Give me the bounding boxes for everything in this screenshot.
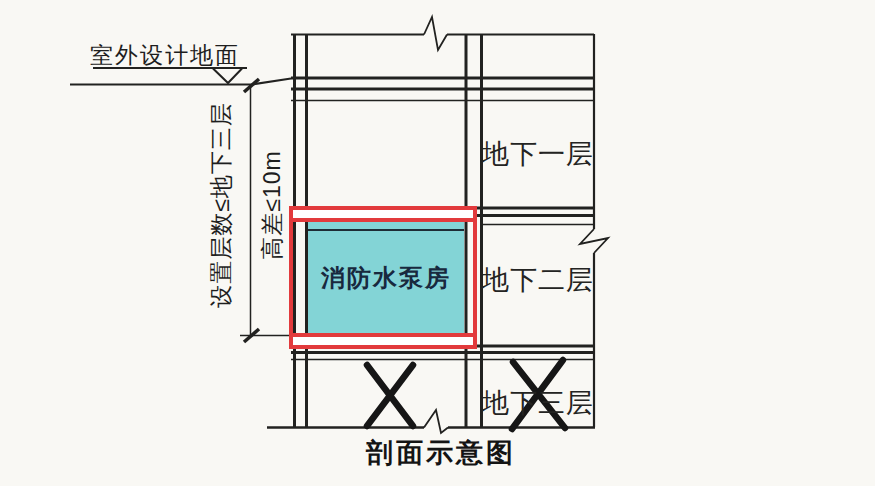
break-symbol-top bbox=[424, 17, 447, 50]
basement-3-label: 地下三层 bbox=[480, 388, 596, 418]
constraint-height-label: 高差≤10m bbox=[259, 130, 285, 280]
section-diagram: 室外设计地面 设置层数≤地下三层 高差≤10m 地下一层 地下二层 地下三层 消… bbox=[0, 0, 875, 486]
outdoor-ground-label: 室外设计地面 bbox=[90, 42, 240, 68]
pump-room-label: 消防水泵房 bbox=[308, 222, 464, 333]
basement-2-label: 地下二层 bbox=[480, 265, 596, 295]
constraint-levels-label: 设置层数≤地下三层 bbox=[208, 80, 234, 330]
ground-and-dimension bbox=[70, 68, 291, 342]
slab-mask bbox=[293, 210, 473, 219]
break-symbol-bottom bbox=[424, 410, 448, 433]
diagram-title: 剖面示意图 bbox=[291, 438, 591, 469]
slab-mask bbox=[293, 337, 473, 346]
basement-1-label: 地下一层 bbox=[480, 139, 596, 169]
break-symbol-right bbox=[580, 229, 608, 253]
